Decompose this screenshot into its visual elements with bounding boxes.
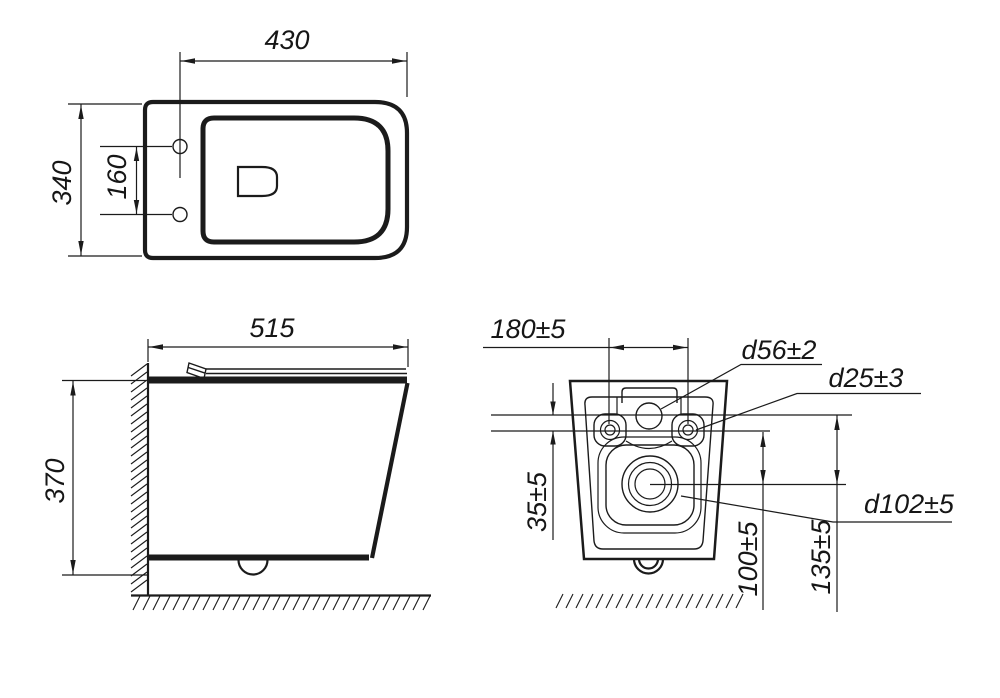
dimension-135: 135±5 xyxy=(806,415,840,612)
toilet-dimension-drawing: 430 340 160 515 xyxy=(0,0,1000,698)
rear-view-trap-bump xyxy=(634,559,663,574)
dim-label-top-width: 430 xyxy=(264,25,309,55)
side-view-trap-arc xyxy=(239,560,268,575)
dim-label-inlet-axis: 135±5 xyxy=(806,519,836,595)
ground-hatching xyxy=(556,594,743,608)
dim-label-inlet-diameter: d56±2 xyxy=(742,335,817,365)
side-view-seat-line xyxy=(206,369,407,374)
top-view-seat-opening xyxy=(203,118,388,242)
dim-label-bolt-spacing: 180±5 xyxy=(491,314,567,344)
rear-view-yoke-lines xyxy=(617,397,681,414)
rear-view-left-bolt-ring xyxy=(601,421,620,440)
top-view-hinge-hole-lower xyxy=(173,208,187,222)
rear-view-inlet-housing xyxy=(622,388,677,403)
dim-label-outlet-diameter: d102±5 xyxy=(864,489,955,519)
side-view-hinge-tab xyxy=(187,363,206,379)
rear-view-left-bolt-hole xyxy=(605,425,615,435)
dimension-370: 370 xyxy=(40,381,147,576)
dimension-515: 515 xyxy=(148,313,408,367)
dim-label-top-depth: 340 xyxy=(47,160,77,205)
floor-hatching xyxy=(133,596,430,610)
rear-view: 180±5 35±5 100±5 135±5 d56±2 xyxy=(483,314,955,612)
leader-d25: d25±3 xyxy=(696,363,921,430)
dim-label-side-height: 370 xyxy=(40,458,70,503)
top-view-flush-slot xyxy=(238,167,277,196)
dim-label-bolt-diameter: d25±3 xyxy=(829,363,904,393)
dim-label-side-depth: 515 xyxy=(249,313,295,343)
dimension-35: 35±5 xyxy=(522,383,556,540)
dim-label-hinge-spacing: 160 xyxy=(102,154,132,199)
technical-drawing-canvas: 430 340 160 515 xyxy=(0,0,1000,698)
leader-d102: d102±5 xyxy=(681,489,955,522)
dimension-100: 100±5 xyxy=(733,432,766,610)
rear-view-inlet-circle xyxy=(636,403,662,429)
dim-label-outlet-axis: 100±5 xyxy=(733,521,763,597)
rear-view-right-bolt-hole xyxy=(683,425,693,435)
side-view: 515 370 xyxy=(40,313,431,610)
dim-label-inlet-offset: 35±5 xyxy=(522,471,552,532)
side-view-rear-slant-edge xyxy=(372,383,408,558)
wall-hatching xyxy=(131,364,147,592)
top-view: 430 340 160 xyxy=(47,25,407,258)
leader-d56: d56±2 xyxy=(661,335,822,409)
dimension-160: 160 xyxy=(100,147,172,215)
